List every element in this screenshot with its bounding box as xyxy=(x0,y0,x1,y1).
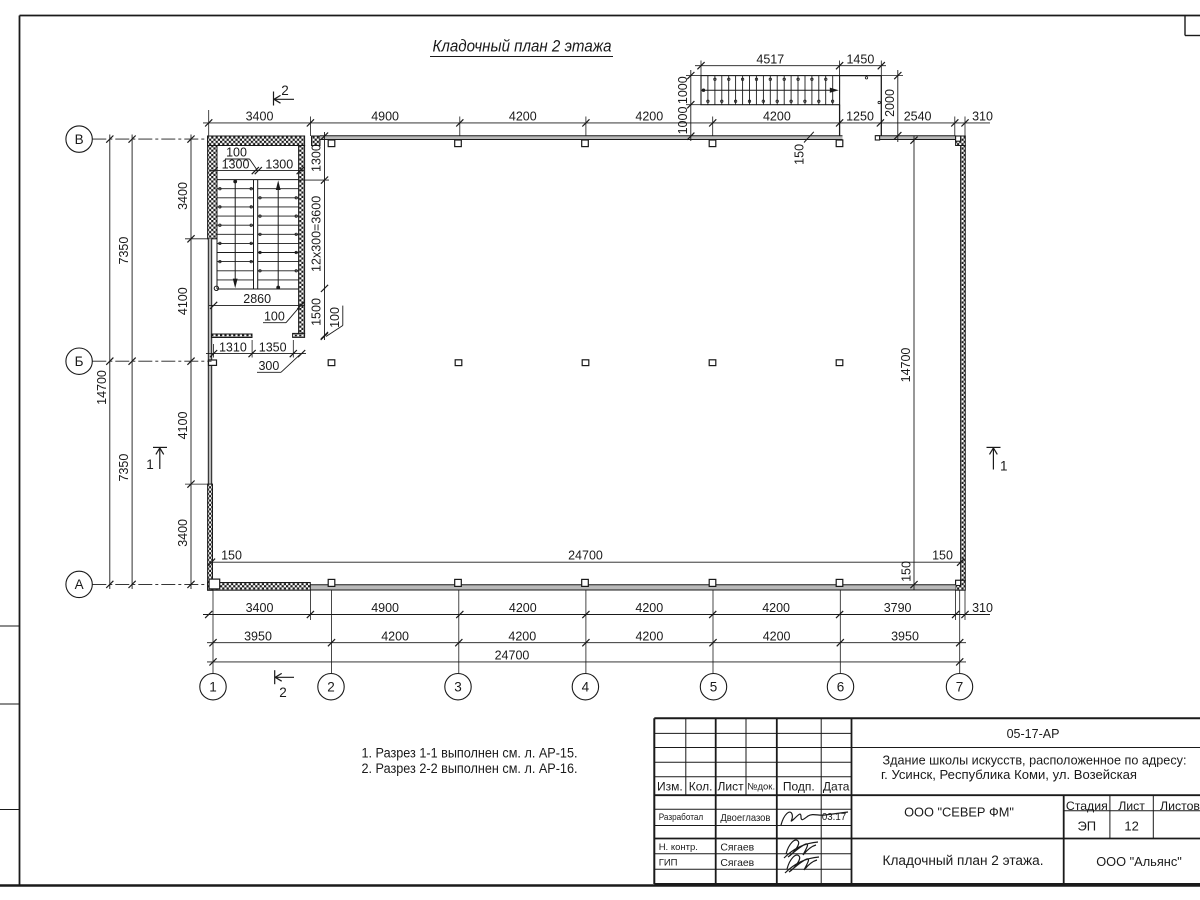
svg-text:Двоеглазов: Двоеглазов xyxy=(720,813,770,824)
svg-text:4: 4 xyxy=(582,680,590,695)
svg-text:Сягаев: Сягаев xyxy=(720,843,754,854)
svg-text:4900: 4900 xyxy=(371,110,399,124)
svg-text:Листов: Листов xyxy=(1160,799,1200,813)
svg-text:Подп.: Подп. xyxy=(783,779,815,793)
svg-text:1000: 1000 xyxy=(676,107,690,135)
svg-text:2: 2 xyxy=(279,685,287,700)
svg-text:24700: 24700 xyxy=(495,649,530,663)
svg-text:4900: 4900 xyxy=(371,601,399,615)
svg-text:2. Разрез 2-2 выполнен см. л.: 2. Разрез 2-2 выполнен см. л. АР-16. xyxy=(362,761,578,776)
svg-text:1: 1 xyxy=(209,680,217,695)
svg-text:Кол.: Кол. xyxy=(689,779,713,793)
svg-text:4517: 4517 xyxy=(756,52,784,66)
svg-text:1300: 1300 xyxy=(310,144,324,172)
svg-text:3790: 3790 xyxy=(884,601,912,615)
svg-text:14700: 14700 xyxy=(899,348,913,383)
svg-text:1: 1 xyxy=(146,457,154,472)
svg-text:3950: 3950 xyxy=(891,629,919,643)
svg-text:2860: 2860 xyxy=(243,292,271,306)
svg-text:4100: 4100 xyxy=(176,412,190,440)
svg-text:150: 150 xyxy=(932,549,953,563)
svg-text:4200: 4200 xyxy=(763,110,791,124)
svg-text:150: 150 xyxy=(793,144,807,165)
svg-text:1. Разрез 1-1 выполнен см. л.: 1. Разрез 1-1 выполнен см. л. АР-15. xyxy=(362,746,578,761)
svg-text:3400: 3400 xyxy=(176,519,190,547)
svg-text:3400: 3400 xyxy=(246,110,274,124)
svg-text:4200: 4200 xyxy=(381,629,409,643)
svg-text:4200: 4200 xyxy=(762,601,790,615)
svg-text:100: 100 xyxy=(328,307,342,328)
svg-text:Н. контр.: Н. контр. xyxy=(659,842,698,853)
svg-text:1350: 1350 xyxy=(259,340,287,354)
svg-text:12х300=3600: 12х300=3600 xyxy=(310,196,324,272)
svg-text:4200: 4200 xyxy=(509,601,537,615)
svg-text:Дата: Дата xyxy=(823,779,850,793)
svg-text:1500: 1500 xyxy=(310,298,324,326)
svg-text:Лист: Лист xyxy=(1118,799,1145,813)
svg-text:4200: 4200 xyxy=(635,110,663,124)
svg-text:150: 150 xyxy=(900,561,914,582)
svg-text:6: 6 xyxy=(837,680,845,695)
svg-text:2000: 2000 xyxy=(883,89,897,117)
svg-text:Изм.: Изм. xyxy=(657,779,683,793)
svg-text:г. Усинск, Республика Коми, ул: г. Усинск, Республика Коми, ул. Возейска… xyxy=(881,767,1137,782)
svg-text:4200: 4200 xyxy=(635,629,663,643)
svg-text:3400: 3400 xyxy=(246,601,274,615)
svg-text:ЭП: ЭП xyxy=(1077,819,1096,834)
svg-text:1250: 1250 xyxy=(846,110,874,124)
svg-text:Здание школы искусств, располо: Здание школы искусств, расположенное по … xyxy=(883,752,1187,767)
svg-text:ООО "Альянс": ООО "Альянс" xyxy=(1096,854,1182,869)
svg-text:24700: 24700 xyxy=(568,549,603,563)
svg-text:4200: 4200 xyxy=(509,110,537,124)
svg-text:150: 150 xyxy=(221,549,242,563)
svg-text:Сягаев: Сягаев xyxy=(720,858,754,869)
svg-text:7350: 7350 xyxy=(117,237,131,265)
svg-text:3: 3 xyxy=(454,680,462,695)
svg-text:4200: 4200 xyxy=(508,629,536,643)
svg-text:Б: Б xyxy=(75,354,84,369)
svg-text:В: В xyxy=(75,132,84,147)
svg-text:4200: 4200 xyxy=(763,629,791,643)
svg-text:12: 12 xyxy=(1124,819,1138,834)
svg-text:2: 2 xyxy=(327,680,335,695)
svg-text:ГИП: ГИП xyxy=(659,857,678,868)
svg-text:2540: 2540 xyxy=(904,110,932,124)
svg-text:1300: 1300 xyxy=(265,157,293,171)
svg-text:Кладочный план 2 этажа: Кладочный план 2 этажа xyxy=(433,37,612,56)
svg-text:5: 5 xyxy=(710,680,718,695)
svg-text:Разработал: Разработал xyxy=(659,812,704,823)
svg-text:№док.: №док. xyxy=(747,782,775,793)
svg-text:7350: 7350 xyxy=(117,454,131,482)
svg-text:1300: 1300 xyxy=(222,157,250,171)
svg-text:7: 7 xyxy=(956,680,964,695)
svg-text:1000: 1000 xyxy=(676,76,690,104)
svg-text:4200: 4200 xyxy=(635,601,663,615)
svg-text:310: 310 xyxy=(972,601,993,615)
svg-text:310: 310 xyxy=(972,110,993,124)
svg-text:2: 2 xyxy=(281,83,289,98)
svg-text:4100: 4100 xyxy=(176,287,190,315)
svg-text:3400: 3400 xyxy=(176,182,190,210)
svg-text:14700: 14700 xyxy=(95,370,109,405)
svg-text:300: 300 xyxy=(258,359,279,373)
svg-text:100: 100 xyxy=(264,309,285,323)
svg-text:Лист: Лист xyxy=(718,779,745,793)
svg-text:1310: 1310 xyxy=(219,340,247,354)
svg-text:3950: 3950 xyxy=(244,629,272,643)
svg-text:Кладочный план 2 этажа.: Кладочный план 2 этажа. xyxy=(883,853,1044,868)
svg-text:ООО "СЕВЕР ФМ": ООО "СЕВЕР ФМ" xyxy=(904,804,1014,819)
svg-text:1: 1 xyxy=(1000,459,1008,474)
svg-text:Стадия: Стадия xyxy=(1066,799,1108,813)
svg-text:А: А xyxy=(75,577,84,592)
svg-text:05-17-АР: 05-17-АР xyxy=(1007,727,1060,741)
svg-text:1450: 1450 xyxy=(846,52,874,66)
